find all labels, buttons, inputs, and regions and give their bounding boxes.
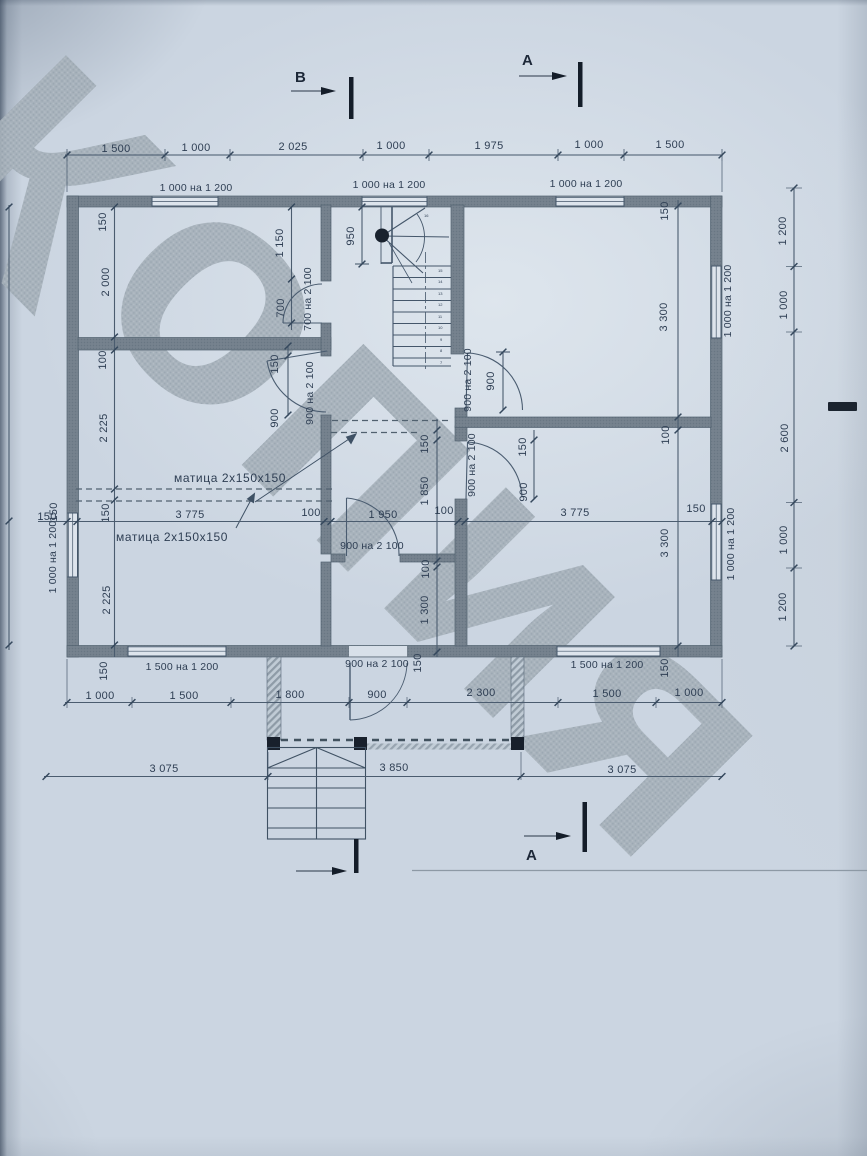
svg-text:3 300: 3 300 — [659, 528, 671, 557]
svg-text:900: 900 — [518, 482, 530, 501]
svg-text:150: 150 — [517, 437, 529, 456]
svg-text:900 на 2 100: 900 на 2 100 — [304, 361, 316, 425]
svg-text:1 500: 1 500 — [169, 690, 198, 702]
svg-text:100: 100 — [420, 559, 432, 578]
svg-text:3 775: 3 775 — [175, 509, 204, 521]
svg-text:1 500 на 1 200: 1 500 на 1 200 — [571, 659, 644, 671]
svg-text:150: 150 — [97, 212, 109, 231]
svg-text:150: 150 — [686, 503, 705, 515]
svg-text:14: 14 — [438, 279, 443, 284]
svg-text:3 075: 3 075 — [149, 763, 178, 775]
svg-text:150: 150 — [659, 658, 671, 677]
svg-text:100: 100 — [434, 505, 453, 517]
svg-text:1 150: 1 150 — [274, 228, 286, 257]
svg-text:2 225: 2 225 — [98, 413, 110, 442]
svg-text:900: 900 — [485, 371, 497, 390]
svg-text:150: 150 — [419, 434, 431, 453]
svg-text:1 000: 1 000 — [674, 687, 703, 699]
svg-text:1 500: 1 500 — [592, 688, 621, 700]
svg-text:16: 16 — [424, 213, 429, 218]
svg-text:А: А — [526, 847, 537, 864]
svg-text:150: 150 — [100, 503, 112, 522]
svg-text:1 000: 1 000 — [376, 140, 405, 152]
svg-text:3 300: 3 300 — [658, 302, 670, 331]
svg-text:150: 150 — [412, 653, 424, 672]
svg-text:3 775: 3 775 — [560, 507, 589, 519]
svg-text:1 000 на 1 200: 1 000 на 1 200 — [725, 508, 737, 581]
svg-text:1 500: 1 500 — [655, 139, 684, 151]
svg-text:матица 2x150x150: матица 2x150x150 — [116, 530, 228, 544]
svg-text:15: 15 — [438, 268, 443, 273]
svg-text:150: 150 — [269, 354, 281, 373]
svg-text:2 225: 2 225 — [101, 585, 113, 614]
svg-text:2 300: 2 300 — [466, 687, 495, 699]
svg-text:2 025: 2 025 — [278, 141, 307, 153]
svg-text:1 000 на 1 200: 1 000 на 1 200 — [353, 179, 426, 191]
svg-text:1 200: 1 200 — [777, 216, 789, 245]
svg-text:900: 900 — [367, 689, 386, 701]
svg-text:900 на 2 100: 900 на 2 100 — [466, 433, 478, 497]
svg-text:100: 100 — [97, 350, 109, 369]
svg-text:1 200: 1 200 — [777, 592, 789, 621]
svg-text:1 000: 1 000 — [181, 142, 210, 154]
svg-text:900: 900 — [269, 408, 281, 427]
svg-text:900 на 2 100: 900 на 2 100 — [462, 348, 474, 412]
svg-text:10: 10 — [438, 325, 443, 330]
svg-text:13: 13 — [438, 291, 443, 296]
svg-text:900 на 2 100: 900 на 2 100 — [340, 540, 404, 552]
svg-text:100: 100 — [301, 507, 320, 519]
svg-text:2 600: 2 600 — [779, 423, 791, 452]
svg-text:1 000 на 1 200: 1 000 на 1 200 — [550, 178, 623, 190]
svg-text:900 на 2 100: 900 на 2 100 — [345, 658, 409, 670]
svg-text:1 950: 1 950 — [368, 509, 397, 521]
svg-text:12: 12 — [438, 302, 443, 307]
svg-text:150: 150 — [48, 502, 60, 521]
svg-text:1 500 на 1 200: 1 500 на 1 200 — [146, 661, 219, 673]
svg-text:1 000 на 1 200: 1 000 на 1 200 — [47, 521, 59, 594]
svg-text:1 000 на 1 200: 1 000 на 1 200 — [722, 265, 734, 338]
svg-text:1 000: 1 000 — [574, 139, 603, 151]
svg-text:100: 100 — [660, 425, 672, 444]
svg-text:3 850: 3 850 — [379, 762, 408, 774]
svg-text:1 000: 1 000 — [778, 290, 790, 319]
svg-text:3 075: 3 075 — [607, 764, 636, 776]
svg-text:150: 150 — [659, 201, 671, 220]
svg-text:1 000: 1 000 — [85, 690, 114, 702]
svg-text:150: 150 — [98, 661, 110, 680]
svg-text:В: В — [295, 69, 306, 86]
svg-text:950: 950 — [345, 226, 357, 245]
svg-text:1 000: 1 000 — [778, 525, 790, 554]
svg-text:700: 700 — [275, 298, 287, 317]
svg-text:1 850: 1 850 — [419, 476, 431, 505]
svg-text:700 на 2 100: 700 на 2 100 — [302, 267, 314, 331]
svg-text:матица 2x150x150: матица 2x150x150 — [174, 471, 286, 485]
svg-text:1 500: 1 500 — [101, 143, 130, 155]
svg-text:1 800: 1 800 — [275, 689, 304, 701]
svg-text:1 975: 1 975 — [474, 140, 503, 152]
svg-text:1 000 на 1 200: 1 000 на 1 200 — [160, 182, 233, 194]
svg-text:2 000: 2 000 — [100, 267, 112, 296]
svg-text:А: А — [522, 52, 533, 69]
svg-text:1 300: 1 300 — [419, 595, 431, 624]
